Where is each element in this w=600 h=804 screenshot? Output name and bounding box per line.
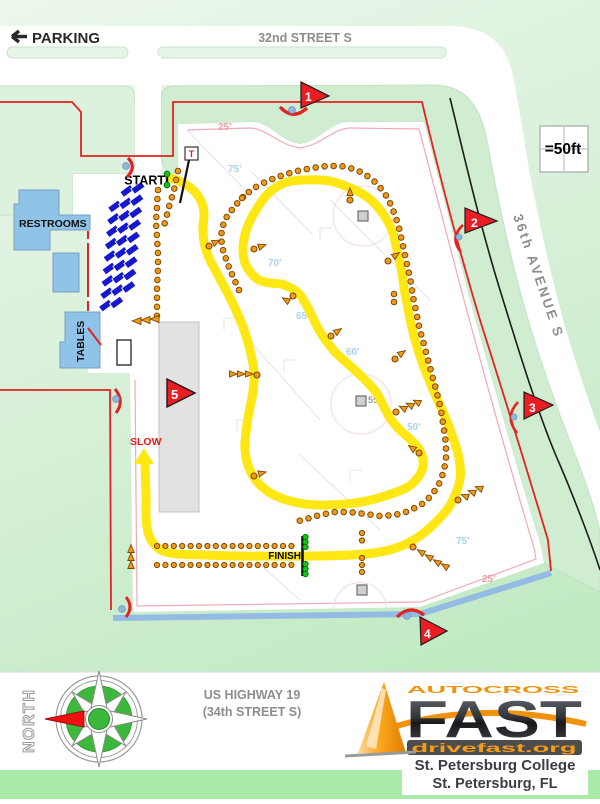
svg-text:25': 25' xyxy=(218,122,232,133)
svg-text:3: 3 xyxy=(529,401,536,415)
svg-text:TABLES: TABLES xyxy=(75,321,87,362)
svg-text:PARKING: PARKING xyxy=(32,30,100,47)
svg-text:=50ft: =50ft xyxy=(545,141,582,158)
svg-text:(34th STREET S): (34th STREET S) xyxy=(203,705,302,719)
svg-text:St. Petersburg, FL: St. Petersburg, FL xyxy=(433,776,558,792)
svg-text:US HIGHWAY 19: US HIGHWAY 19 xyxy=(204,688,301,702)
svg-text:75': 75' xyxy=(456,536,470,547)
svg-text:32nd STREET S: 32nd STREET S xyxy=(258,31,352,45)
svg-text:NORTH: NORTH xyxy=(21,689,38,753)
svg-text:25': 25' xyxy=(482,574,496,585)
svg-text:60': 60' xyxy=(346,347,360,358)
svg-text:T: T xyxy=(189,149,195,159)
svg-text:drivefast.org: drivefast.org xyxy=(412,741,577,755)
svg-text:50': 50' xyxy=(407,422,421,433)
svg-text:70': 70' xyxy=(268,258,282,269)
svg-text:5: 5 xyxy=(171,387,178,402)
svg-text:2: 2 xyxy=(471,216,478,230)
svg-text:RESTROOMS: RESTROOMS xyxy=(19,218,87,230)
svg-text:FINISH: FINISH xyxy=(268,551,301,562)
svg-text:4: 4 xyxy=(424,627,431,641)
svg-text:75': 75' xyxy=(228,164,242,175)
svg-text:SLOW: SLOW xyxy=(130,436,162,448)
svg-text:1: 1 xyxy=(305,90,312,104)
svg-text:START: START xyxy=(124,174,165,188)
svg-text:St. Petersburg College: St. Petersburg College xyxy=(415,757,576,774)
